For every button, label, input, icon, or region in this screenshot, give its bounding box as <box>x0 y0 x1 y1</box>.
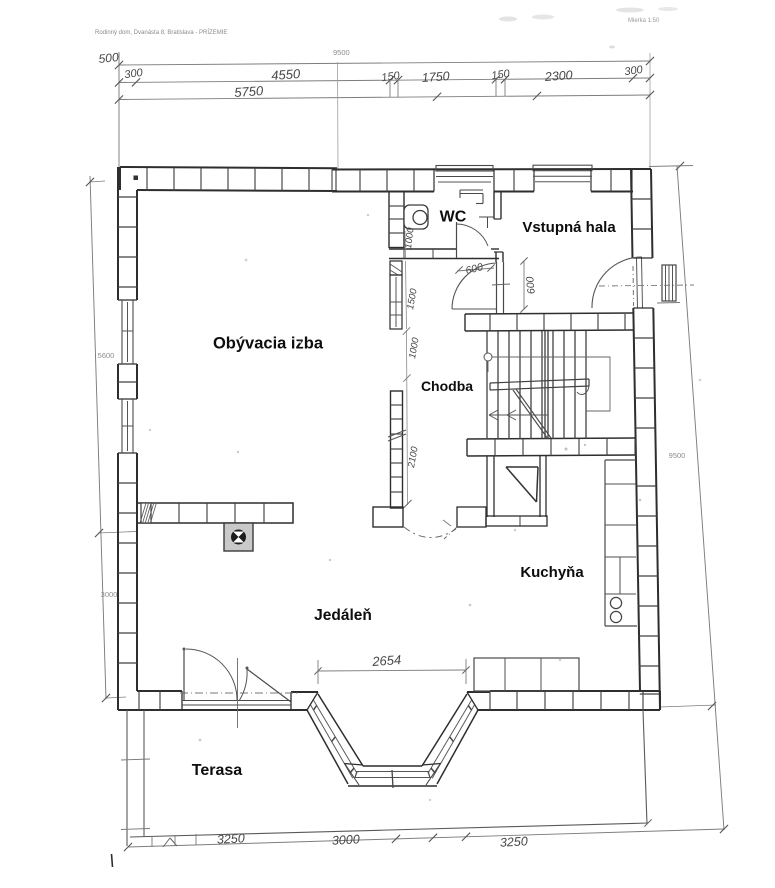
svg-text:WC: WC <box>440 209 467 226</box>
svg-text:2654: 2654 <box>371 652 402 669</box>
svg-text:4550: 4550 <box>271 66 302 83</box>
svg-text:Jedáleň: Jedáleň <box>314 607 372 624</box>
svg-text:9500: 9500 <box>333 48 350 57</box>
svg-text:500: 500 <box>98 50 120 66</box>
svg-text:Kuchyňa: Kuchyňa <box>520 564 584 581</box>
svg-text:Obývacia izba: Obývacia izba <box>213 335 324 353</box>
svg-text:Vstupná hala: Vstupná hala <box>522 219 616 236</box>
svg-text:9500: 9500 <box>669 451 686 460</box>
svg-text:Chodba: Chodba <box>421 378 473 394</box>
svg-text:3250: 3250 <box>500 834 529 849</box>
svg-text:5750: 5750 <box>234 83 265 100</box>
svg-text:3000: 3000 <box>101 590 118 599</box>
svg-text:Mierka 1:50: Mierka 1:50 <box>628 18 660 24</box>
svg-text:Rodinný dom, Dvanásta 8, Brati: Rodinný dom, Dvanásta 8, Bratislava - PR… <box>95 29 227 36</box>
svg-text:1750: 1750 <box>421 69 450 85</box>
svg-text:2300: 2300 <box>543 68 573 84</box>
svg-text:600: 600 <box>524 276 538 295</box>
svg-text:5600: 5600 <box>98 351 115 360</box>
svg-text:Terasa: Terasa <box>192 762 243 779</box>
svg-text:3000: 3000 <box>332 832 361 847</box>
